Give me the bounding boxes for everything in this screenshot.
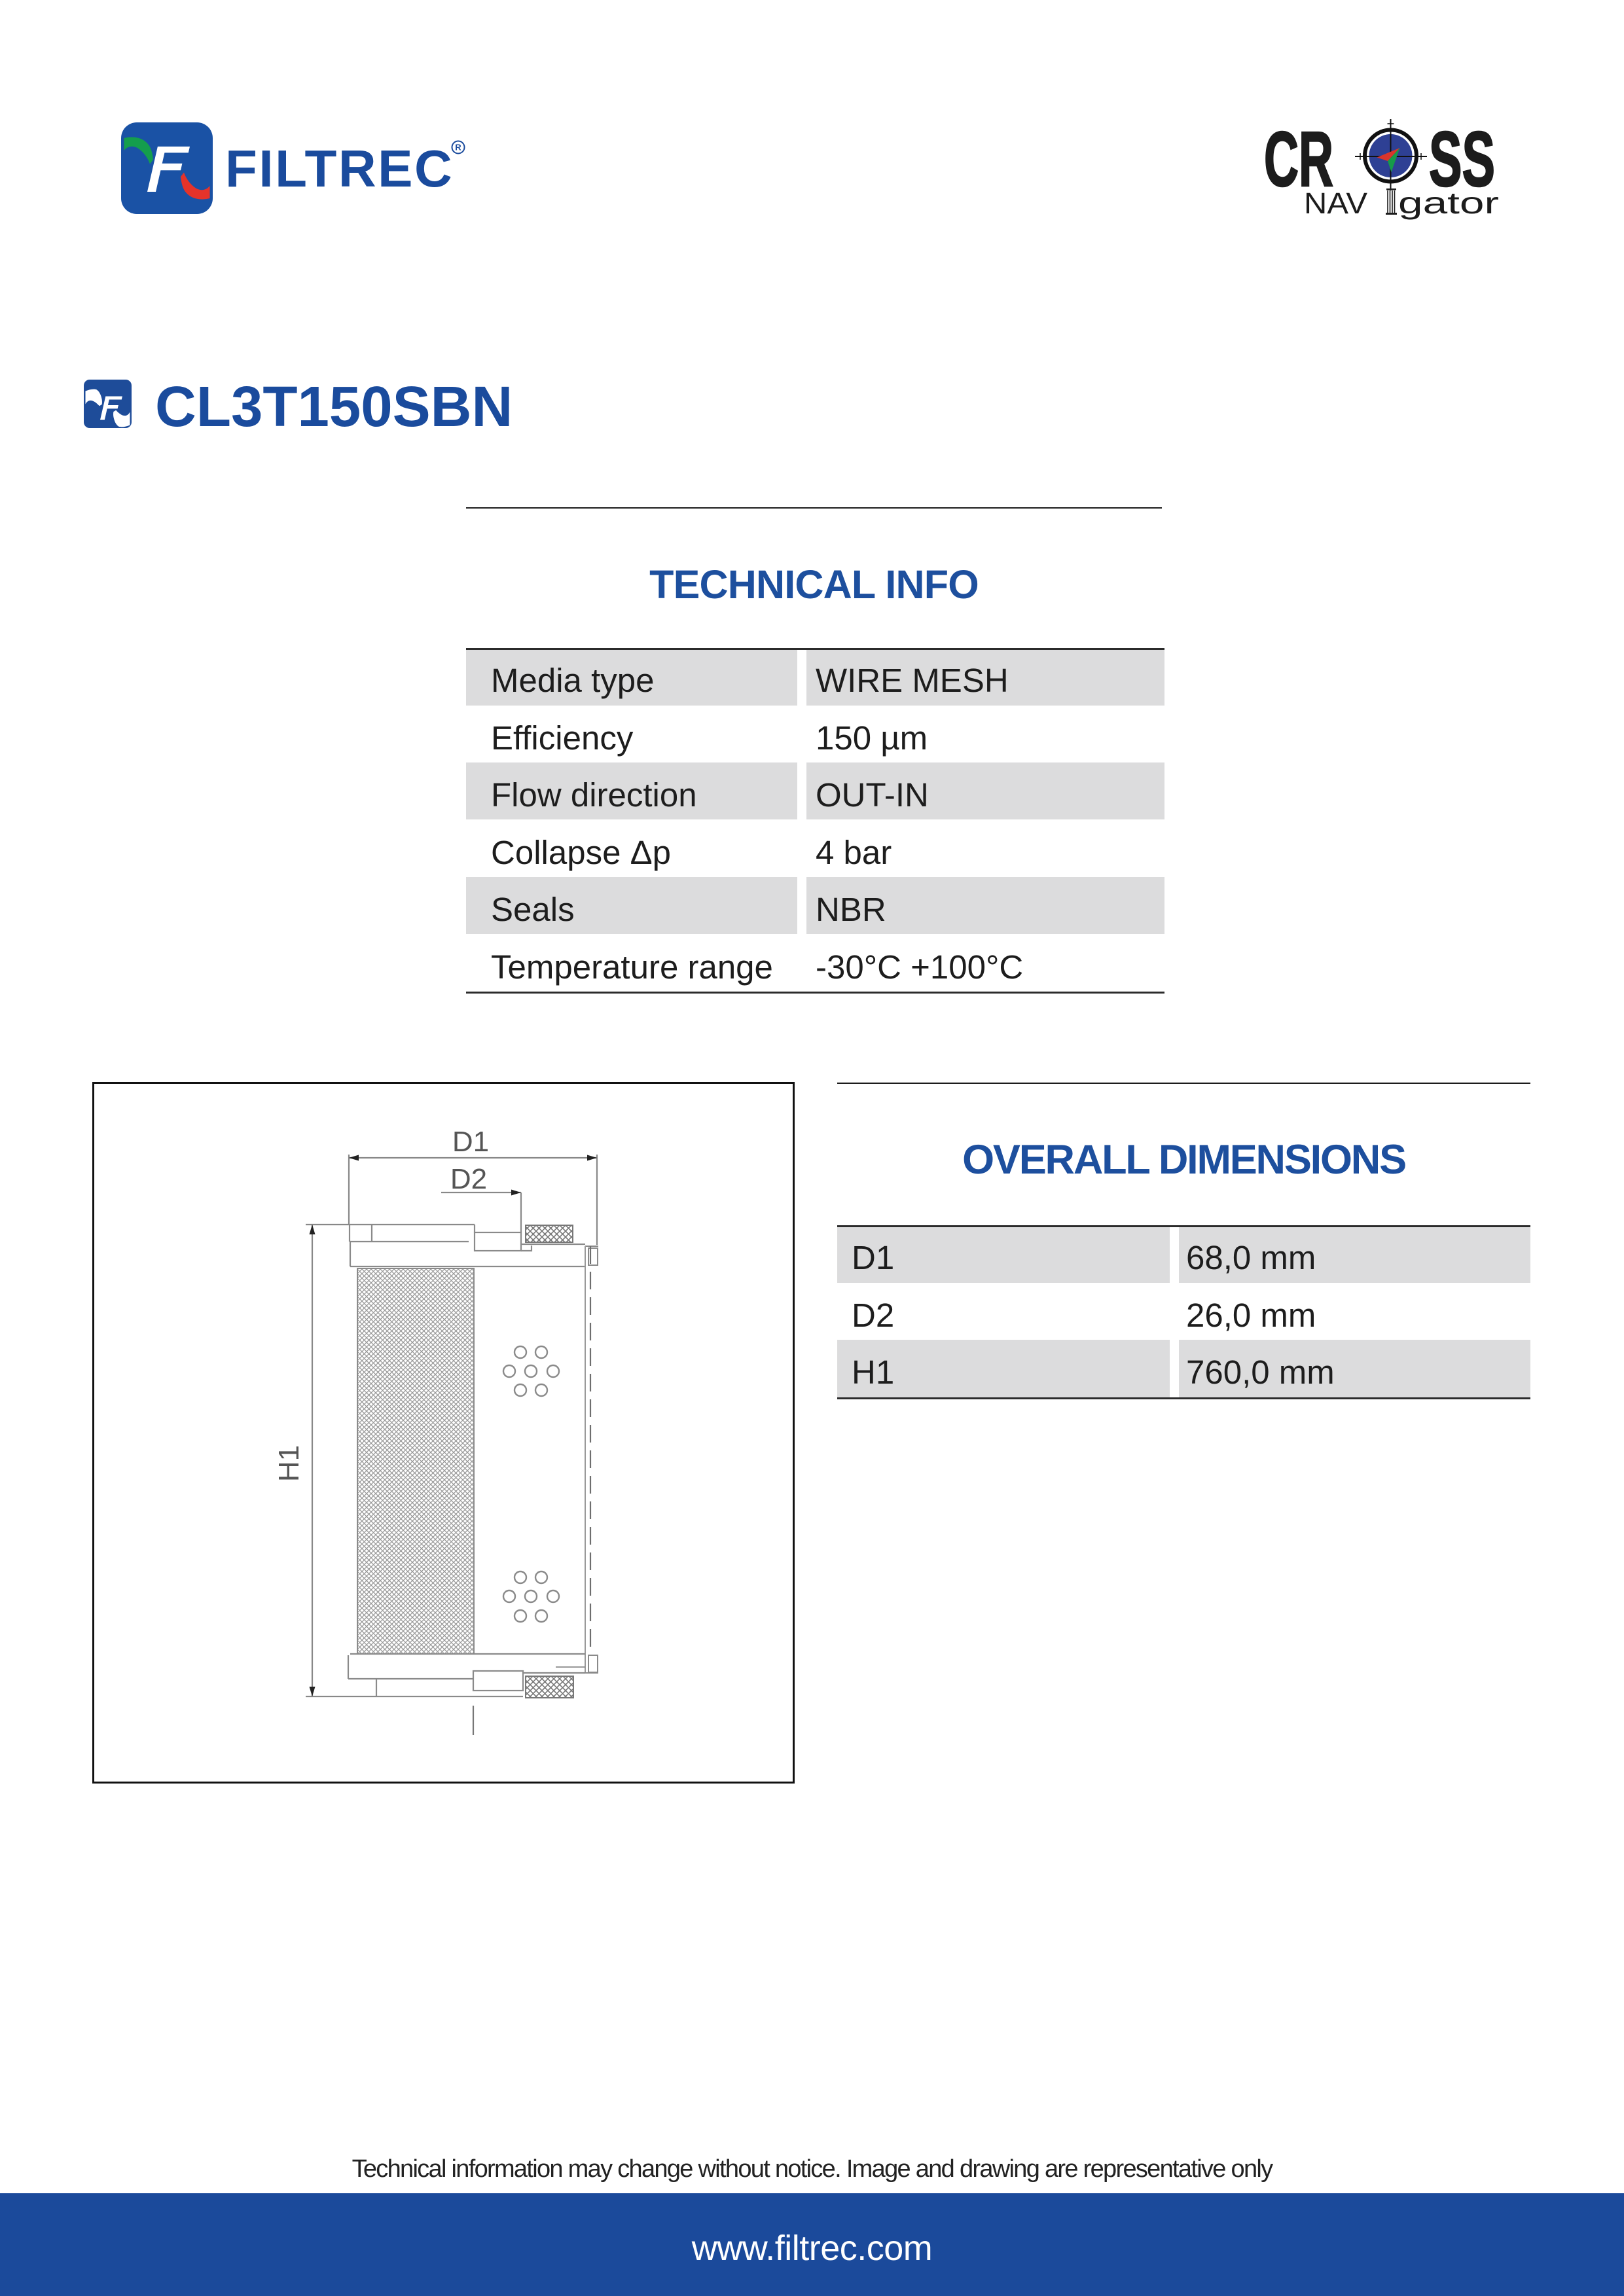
svg-text:NAV: NAV <box>1304 187 1367 220</box>
svg-text:D2: D2 <box>450 1163 487 1195</box>
svg-text:H1: H1 <box>273 1445 305 1482</box>
svg-text:D1: D1 <box>452 1126 489 1158</box>
svg-text:R: R <box>455 143 461 152</box>
svg-text:gator: gator <box>1398 186 1499 220</box>
